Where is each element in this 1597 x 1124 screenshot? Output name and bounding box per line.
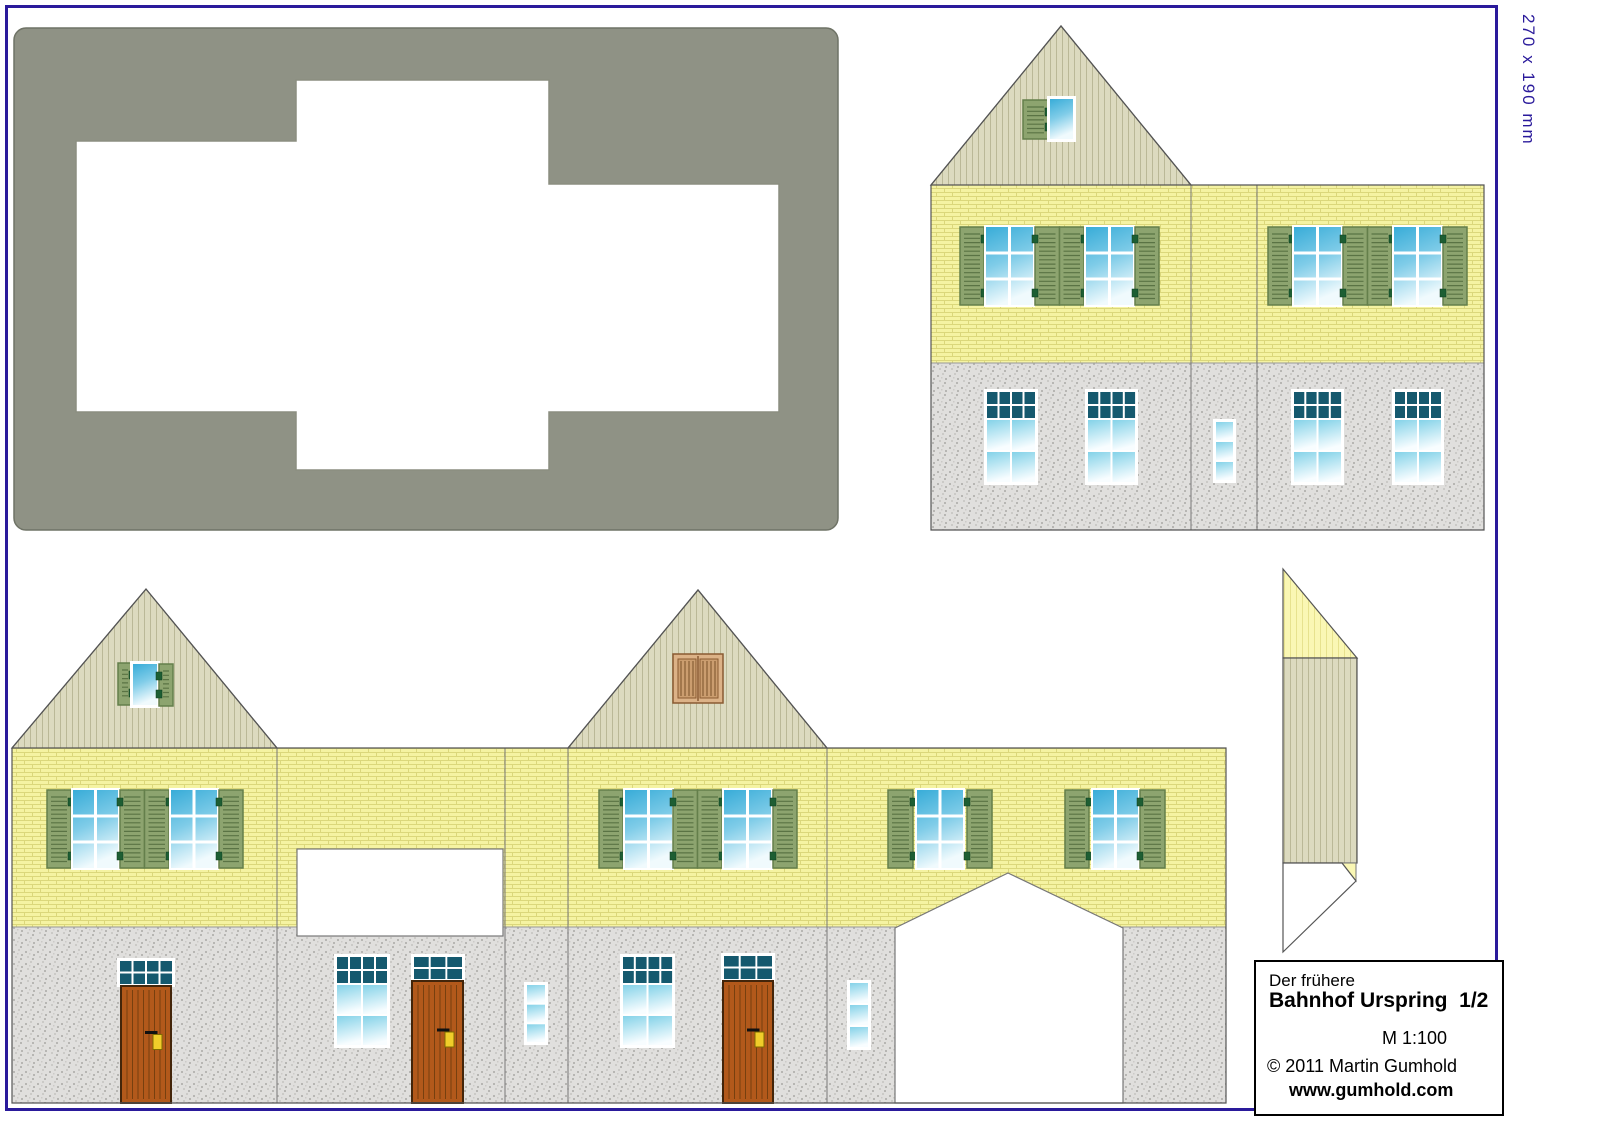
upper-window — [169, 788, 219, 870]
model-title: Bahnhof Urspring 1/2 — [1269, 989, 1488, 1013]
shutter-hinge — [1137, 798, 1143, 806]
door-lock-plate — [153, 1035, 162, 1050]
shutter-hinge — [1440, 235, 1446, 243]
upper-window — [722, 788, 773, 870]
window-shutter — [1032, 227, 1060, 305]
window-shutter — [216, 790, 243, 868]
narrow-window — [1213, 419, 1236, 483]
window-shutter — [1440, 227, 1467, 305]
upper-window — [984, 225, 1035, 307]
shutter-hinge — [1032, 289, 1038, 297]
ground-floor-window — [334, 954, 390, 1048]
window-shutter — [1060, 227, 1088, 305]
shutter-hinge — [1440, 289, 1446, 297]
model-subtitle: Der frühere — [1269, 971, 1355, 991]
shutter-hinge — [1132, 289, 1138, 297]
entrance-door — [721, 953, 775, 1103]
ground-floor-window — [984, 389, 1038, 485]
gable-window — [130, 661, 160, 708]
shutter-hinge — [770, 798, 776, 806]
papercraft-sheet: 270 x 190 mm Der frühere Bahnhof Ursprin… — [0, 0, 1597, 1124]
window-shutter — [888, 790, 916, 868]
window-shutter — [117, 790, 145, 868]
sheet-dimension-label: 270 x 190 mm — [1518, 14, 1538, 146]
upper-window — [623, 788, 674, 870]
window-shutter — [1368, 227, 1396, 305]
upper-window — [915, 788, 965, 870]
door-lock-plate — [445, 1032, 454, 1047]
copyright-text: © 2011 Martin Gumhold — [1267, 1056, 1457, 1077]
shutter-hinge — [1132, 235, 1138, 243]
window-shutter — [1132, 227, 1159, 305]
model-scale: M 1:100 — [1382, 1028, 1447, 1049]
window-shutter — [1268, 227, 1295, 305]
roof-template-piece — [14, 28, 838, 530]
shutter-hinge — [1032, 235, 1038, 243]
shutter-hinge — [1137, 852, 1143, 860]
ground-floor-window — [1392, 389, 1444, 485]
shutter-hinge — [156, 690, 162, 698]
ground-floor-window — [620, 954, 675, 1048]
window-shutter — [1023, 100, 1051, 139]
upper-window — [1392, 225, 1443, 307]
shutter-hinge — [1340, 235, 1346, 243]
shutter-hinge — [770, 852, 776, 860]
narrow-window — [847, 980, 871, 1050]
website-text: www.gumhold.com — [1289, 1080, 1453, 1101]
window-shutter — [1137, 790, 1165, 868]
roof-ridge-piece — [1283, 569, 1357, 952]
window-shutter — [156, 664, 173, 706]
narrow-window — [524, 982, 548, 1045]
upper-window — [1091, 788, 1140, 870]
window-shutter — [599, 790, 626, 868]
sheet-canvas — [0, 0, 1597, 1124]
shutter-hinge — [1340, 289, 1346, 297]
upper-window — [1292, 225, 1343, 307]
window-shutter — [1065, 790, 1092, 868]
window-shutter — [145, 790, 173, 868]
ground-floor-window — [1291, 389, 1344, 485]
upper-window — [71, 788, 120, 870]
shutter-hinge — [216, 798, 222, 806]
shutter-hinge — [216, 852, 222, 860]
sheet-drawing — [0, 0, 1597, 1124]
window-shutter — [1340, 227, 1368, 305]
shutter-hinge — [117, 798, 123, 806]
shutter-hinge — [964, 798, 970, 806]
entrance-door — [117, 958, 175, 1103]
entrance-door — [411, 954, 465, 1103]
shutter-hinge — [964, 852, 970, 860]
window-shutter — [698, 790, 726, 868]
street-facade-piece — [12, 589, 1226, 1103]
upper-window — [1084, 225, 1135, 307]
glue-tab — [1283, 863, 1356, 952]
window-shutter — [964, 790, 992, 868]
shutter-hinge — [670, 798, 676, 806]
door-lock-plate — [755, 1032, 764, 1047]
shutter-hinge — [117, 852, 123, 860]
facade-opening-cutout — [297, 849, 503, 936]
title-block: Der frühere Bahnhof Urspring 1/2 M 1:100… — [1254, 960, 1504, 1116]
attic-vent — [673, 654, 723, 703]
window-shutter — [770, 790, 797, 868]
shutter-hinge — [670, 852, 676, 860]
gable-end-wall-piece — [931, 26, 1484, 530]
window-shutter — [47, 790, 74, 868]
shutter-hinge — [156, 672, 162, 680]
window-shutter — [670, 790, 698, 868]
ground-floor-window — [1085, 389, 1138, 485]
window-shutter — [960, 227, 987, 305]
gable-window — [1047, 96, 1076, 142]
